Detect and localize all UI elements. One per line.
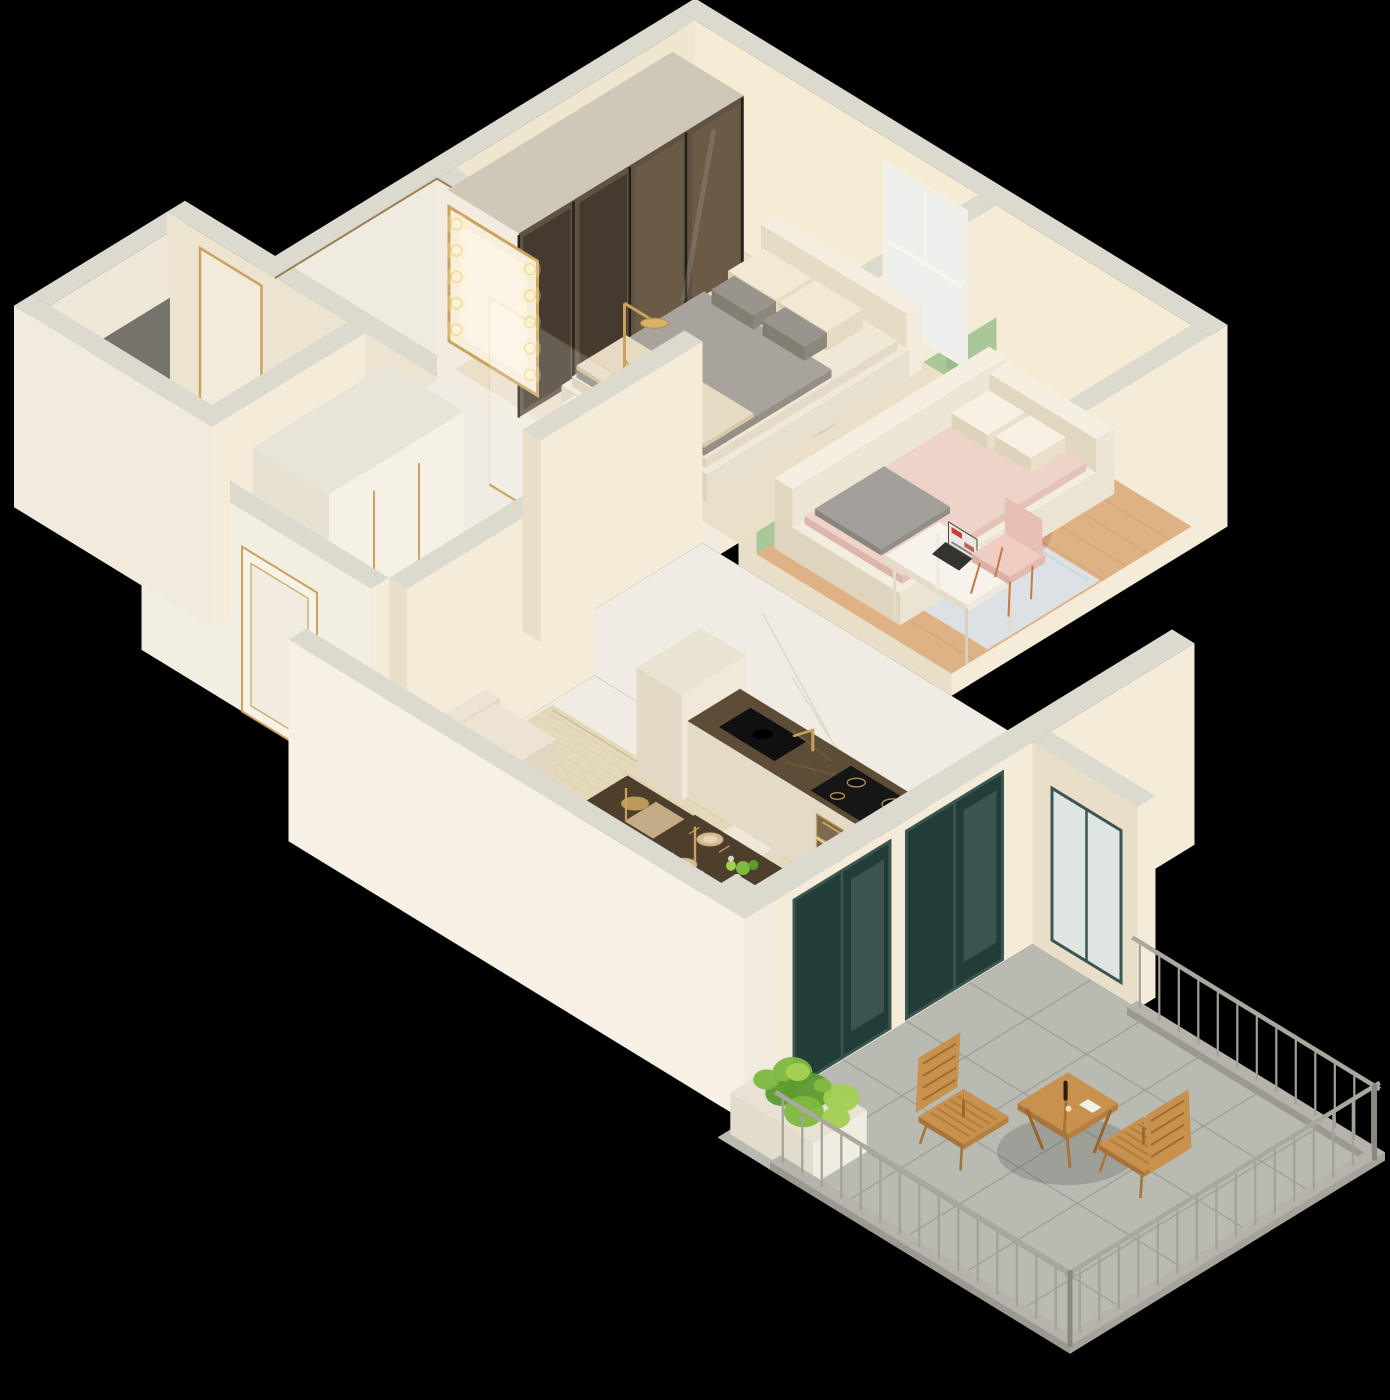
bath-east-wall-face-sw: [523, 430, 541, 643]
sink-drain: [753, 729, 773, 739]
plant-foliage: [814, 1079, 832, 1093]
centerpiece-plant: [749, 860, 759, 870]
chair-leg: [1141, 1173, 1143, 1198]
mirror-bulb: [451, 298, 462, 309]
centerpiece-plant: [726, 861, 736, 871]
mirror-bulb: [451, 219, 462, 230]
glass: [728, 856, 734, 862]
mirror-bulb: [451, 245, 462, 256]
plate-inner: [703, 836, 717, 843]
wine-glass: [1066, 1106, 1072, 1112]
burner: [831, 793, 845, 800]
isometric-floorplan-render: 3D Isometric Apartment Floor Plan Render: [0, 0, 1390, 1400]
burner: [847, 778, 865, 787]
plant-foliage: [753, 1069, 779, 1089]
wc-sw-wall-face-se: [212, 416, 230, 629]
gold-tray: [621, 797, 649, 811]
mirror-bulb: [451, 324, 462, 335]
mirror-bulb: [525, 290, 536, 301]
glass-reflection: [851, 859, 884, 1031]
wall-ne-face-se: [1210, 325, 1228, 538]
glass-reflection: [964, 790, 997, 962]
mirror-bulb: [525, 264, 536, 275]
centerpiece-plant: [736, 861, 750, 875]
plant-foliage: [786, 1063, 810, 1081]
mirror-bulb: [451, 272, 462, 283]
wall-end-block-face-sw: [703, 894, 744, 1121]
chair-leg: [961, 1145, 963, 1170]
rain-shower-head: [641, 318, 669, 328]
floorplan-stage: 3D Isometric Apartment Floor Plan Render: [0, 0, 1390, 1400]
